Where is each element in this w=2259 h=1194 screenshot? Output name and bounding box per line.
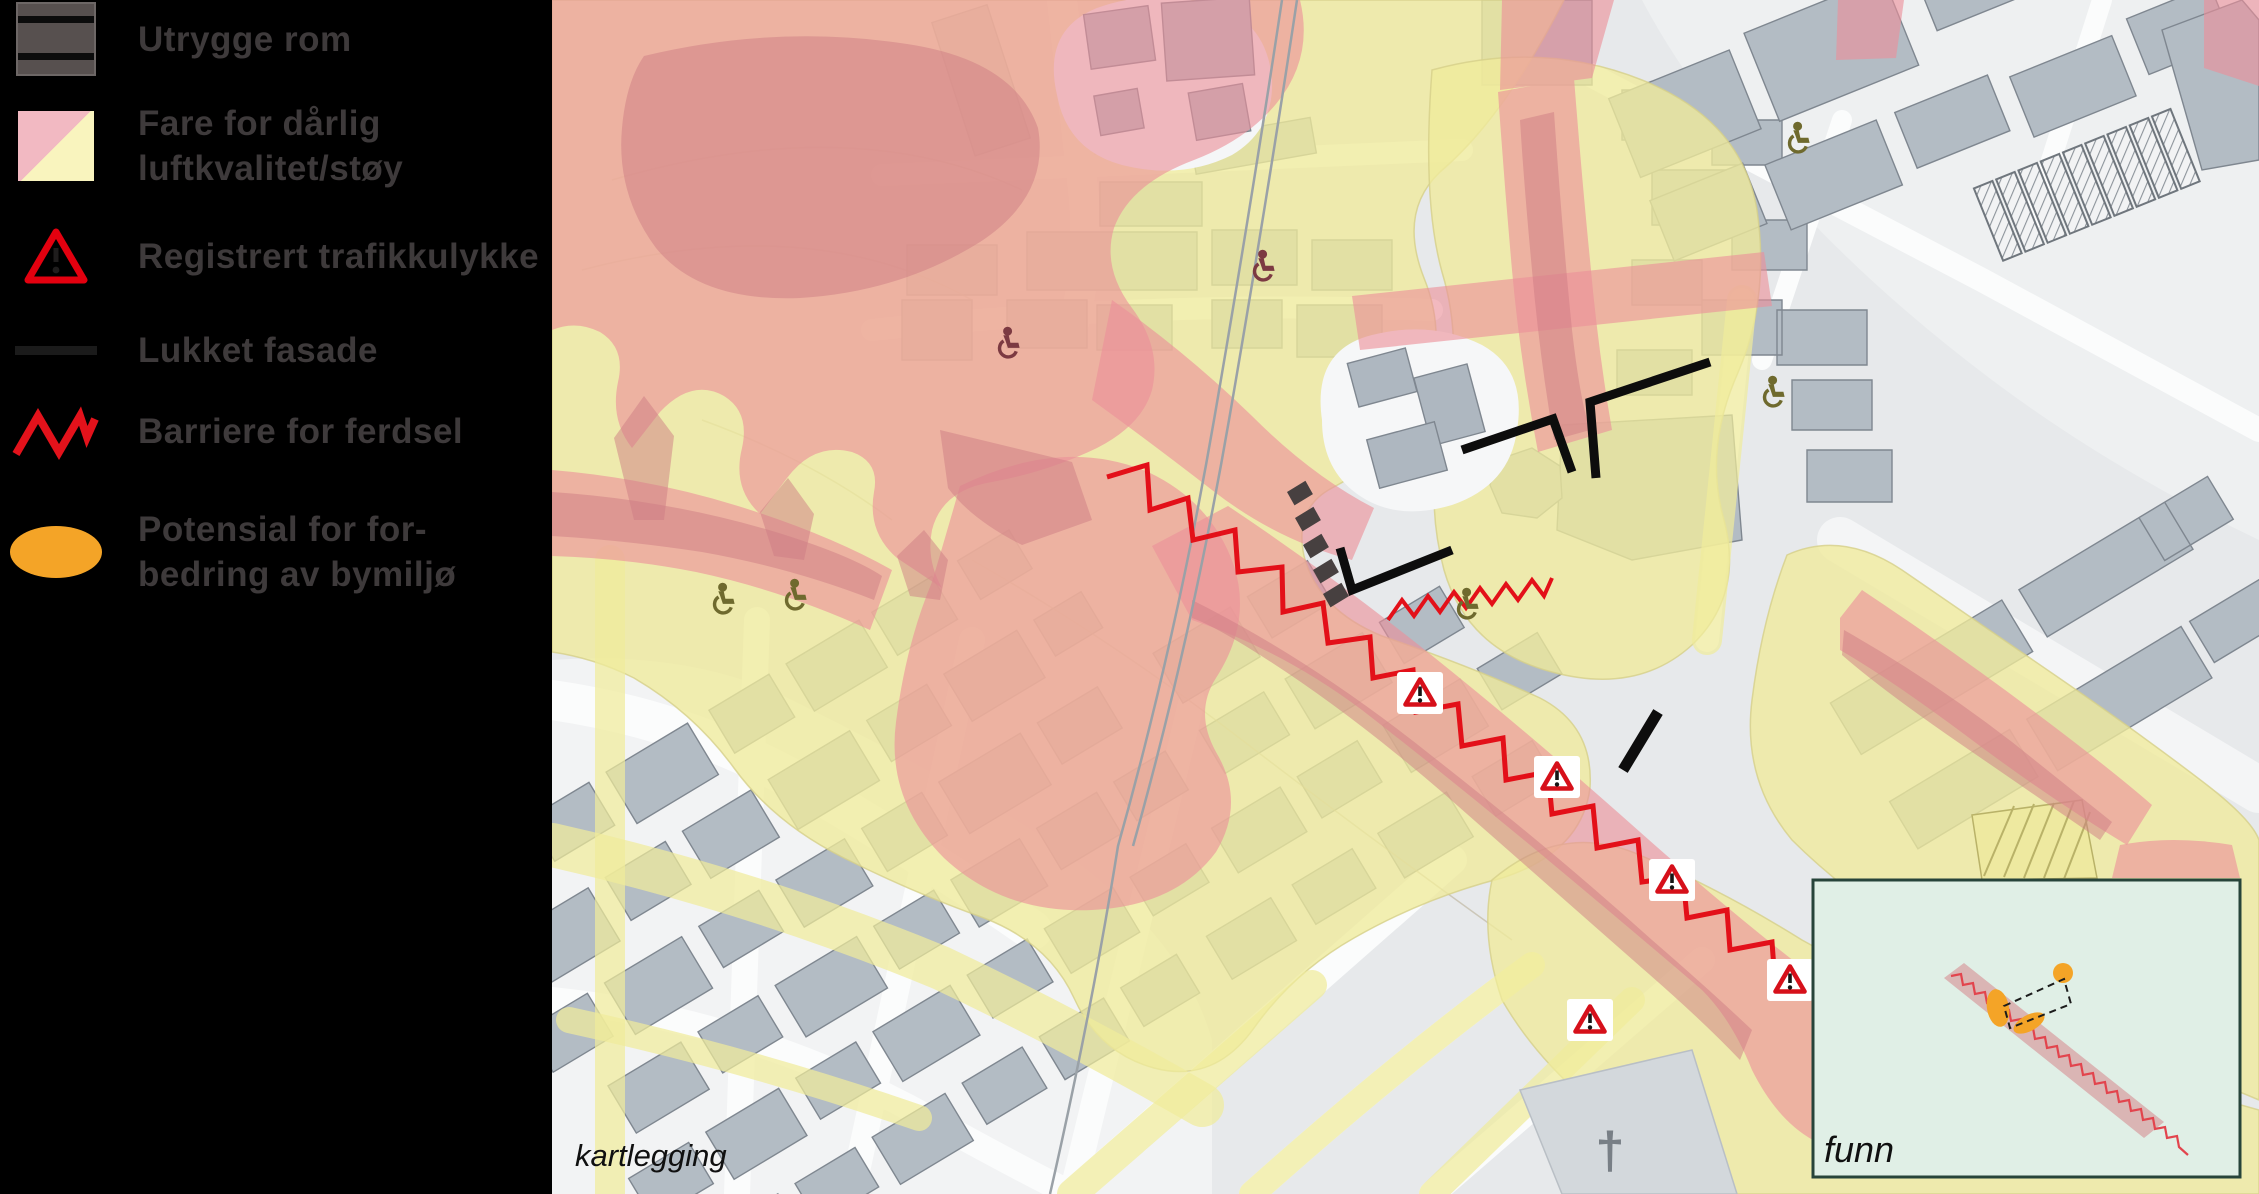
black-line-icon: [0, 346, 112, 355]
urban-analysis-figure: Utrygge rom Fare for dårlig luftkvalitet…: [0, 0, 2259, 1194]
legend-item-barriere: Barriere for ferdsel: [0, 400, 463, 462]
legend-item-potensial: Potensial for for- bedring av bymiljø: [0, 510, 456, 594]
inset-caption: funn: [1824, 1129, 1894, 1170]
legend-item-lukket-fasade: Lukket fasade: [0, 316, 378, 384]
orange-ellipse-icon: [0, 526, 112, 578]
legend-label: Barriere for ferdsel: [138, 409, 463, 454]
legend-item-trafikkulykke: Registrert trafikkulykke: [0, 224, 539, 288]
map-canvas: † funn kartlegging: [552, 0, 2259, 1194]
legend-label: Fare for dårlig luftkvalitet/støy: [138, 101, 403, 191]
legend-label: Registrert trafikkulykke: [138, 234, 539, 279]
legend-item-luftkvalitet: Fare for dårlig luftkvalitet/støy: [0, 100, 403, 192]
legend-panel: Utrygge rom Fare for dårlig luftkvalitet…: [0, 0, 552, 1194]
striped-dark-square-icon: [0, 2, 112, 76]
pink-yellow-diagonal-swatch-icon: [0, 111, 112, 181]
inset-map: funn: [1813, 880, 2240, 1177]
legend-label: Lukket fasade: [138, 328, 378, 373]
legend-label: Utrygge rom: [138, 17, 352, 62]
church-cross-icon: †: [1596, 1122, 1625, 1180]
red-zigzag-icon: [0, 402, 112, 460]
map-caption: kartlegging: [575, 1138, 727, 1173]
legend-label: Potensial for for- bedring av bymiljø: [138, 507, 456, 597]
red-warning-triangle-icon: [0, 226, 112, 286]
legend-item-utrygge-rom: Utrygge rom: [0, 0, 352, 78]
